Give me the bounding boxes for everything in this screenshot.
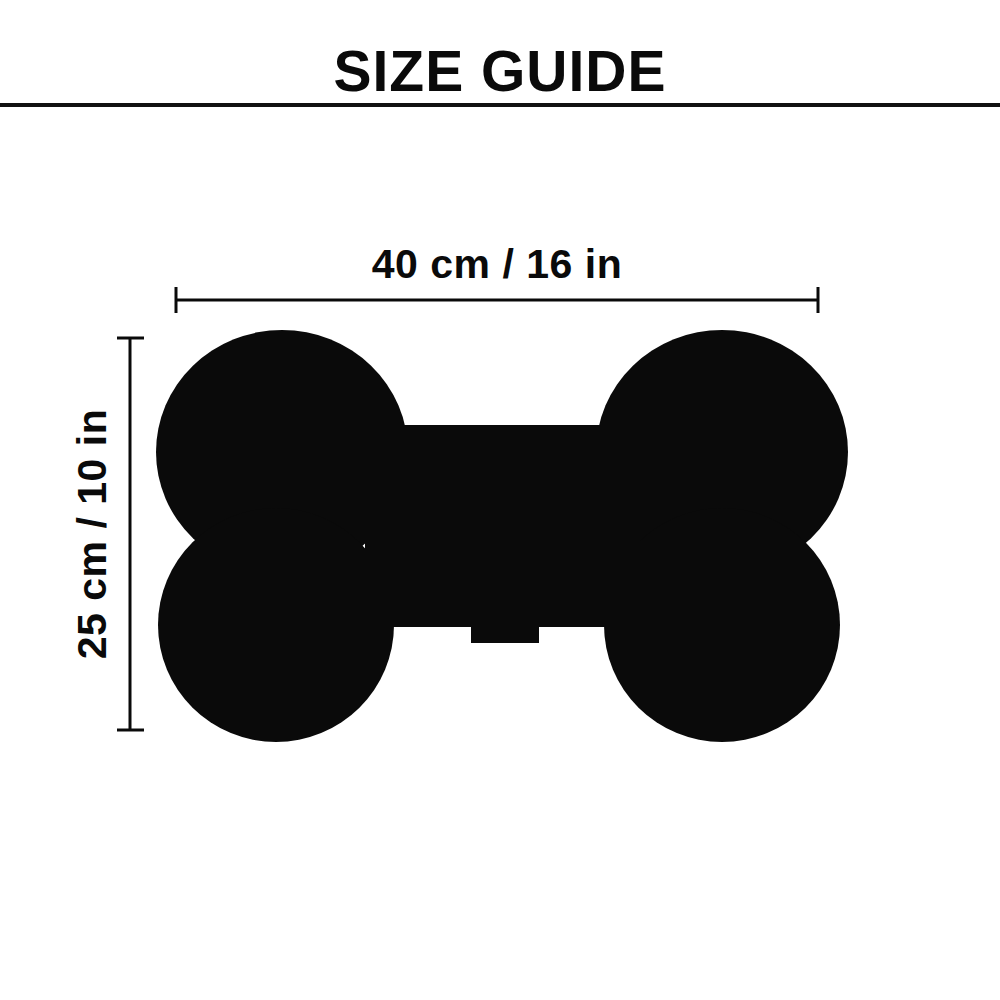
- width-dimension-line: [176, 287, 818, 313]
- size-guide-page: SIZE GUIDE 40 cm / 16 in 25 cm / 10 in: [0, 0, 1000, 1000]
- bone-bottom-tag: [471, 600, 539, 643]
- height-dimension-line: [117, 338, 144, 730]
- bone-silhouette: [156, 330, 848, 742]
- bone-size-diagram: [0, 0, 1000, 1000]
- bone-lobe-bottom-left: [158, 508, 394, 742]
- bone-center-bar: [365, 425, 640, 627]
